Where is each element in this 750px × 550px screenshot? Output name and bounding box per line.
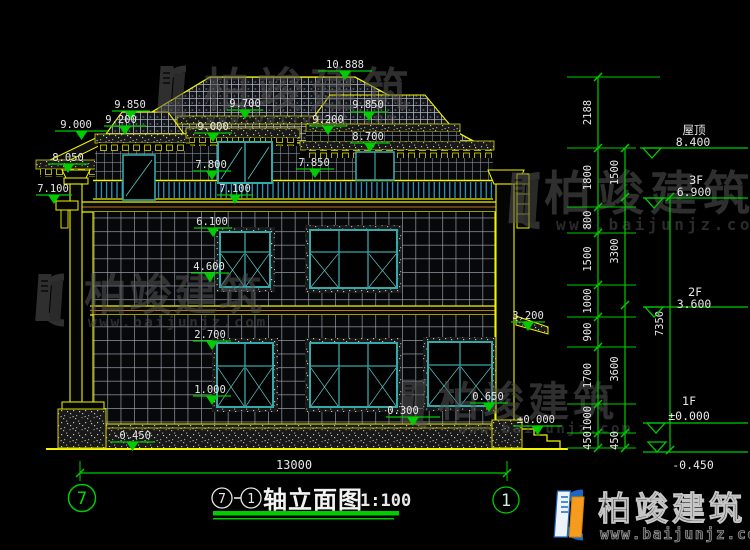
elevation-value: 3.200: [512, 310, 544, 322]
floor-elevation: 6.900: [677, 185, 712, 199]
watermark-url: www.baijunjz.com: [88, 315, 268, 331]
elevation-value: 9.700: [229, 98, 261, 110]
elevation-value: 9.000: [197, 121, 229, 133]
elevation-value: 9.850: [352, 99, 384, 111]
dimension-value: 1000: [582, 288, 594, 313]
floor-elevation: 3.600: [677, 297, 712, 311]
elevation-value: 9.000: [60, 119, 92, 131]
dimension-value: 1000: [582, 406, 594, 431]
elevation-value: 7.100: [37, 183, 69, 195]
right-dentils: [306, 150, 492, 158]
elevation-value: 2.700: [194, 329, 226, 341]
balcony-end-molding: [56, 201, 78, 210]
elevation-value: 8.050: [52, 152, 84, 164]
dimension-value: 3300: [609, 238, 621, 263]
floor-elevation: ±0.000: [668, 409, 710, 423]
left-column-pedestal: [58, 409, 106, 448]
corbel: [61, 210, 68, 228]
title-underline-thin: [213, 518, 394, 520]
1f-center-window: [310, 343, 397, 407]
left-eave-fascia: [95, 134, 190, 143]
floor-elevation: -0.450: [672, 458, 714, 472]
title-axis-from: 7: [218, 492, 226, 507]
overall-width-text: 13000: [276, 458, 312, 472]
left-column-shaft: [70, 184, 82, 402]
dimension-value: 1500: [609, 160, 621, 185]
dimension-value: 900: [582, 323, 594, 342]
right-eave-fascia: [300, 141, 494, 150]
dimension-value: 1800: [582, 165, 594, 190]
brand-logo-icon: [554, 491, 584, 537]
elevation-value: 1.000: [194, 384, 226, 396]
2f-right-window: [310, 230, 397, 288]
dimension-value: 2188: [582, 100, 594, 125]
title-underline-thick: [213, 511, 399, 516]
brand-url: www.baijunjz.com: [600, 525, 750, 543]
elevation-value: 7.850: [298, 157, 330, 169]
watermark-text: 柏竣建筑: [544, 167, 750, 222]
elevation-value: -0.450: [113, 430, 151, 442]
floor-name: 1F: [682, 394, 696, 408]
elevation-value: 8.700: [352, 131, 384, 143]
elevation-drawing-canvas: 柏竣建筑 www.baijunjz.com 柏竣建筑 www.baijunjz.…: [0, 0, 750, 550]
axis-bubble-left-number: 7: [77, 489, 87, 509]
elevation-value: 0.300: [387, 405, 419, 417]
elevation-value: 4.600: [193, 261, 225, 273]
drawing-scale: 1:100: [360, 491, 411, 511]
floor-elevation: 8.400: [676, 135, 711, 149]
3f-slab-band: [78, 202, 502, 212]
dimension-value: 450: [582, 431, 594, 450]
elevation-value: 6.100: [196, 216, 228, 228]
dimension-value: 3600: [609, 356, 621, 381]
watermark-text: 柏竣建筑: [84, 271, 264, 321]
dimension-value: 1700: [582, 363, 594, 388]
dimension-value: 800: [582, 211, 594, 230]
dimension-value: 1500: [582, 246, 594, 271]
dimension-value: 450: [609, 431, 621, 450]
elevation-value: ±0.000: [517, 414, 555, 426]
elevation-value: 9.850: [114, 99, 146, 111]
elevation-value: 10.888: [326, 59, 364, 71]
axis-bubble-right-number: 1: [501, 491, 511, 511]
title-axis-to: 1: [247, 492, 255, 507]
cad-elevation-screenshot: 柏竣建筑 www.baijunjz.com 柏竣建筑 www.baijunjz.…: [0, 0, 750, 550]
plinth: [90, 424, 498, 448]
elevation-value: 7.800: [195, 159, 227, 171]
brand-name: 柏竣建筑: [598, 489, 746, 528]
drawing-title-text: 轴立面图: [263, 486, 363, 514]
elevation-value: 0.650: [472, 391, 504, 403]
elevation-value: 9.200: [105, 114, 137, 126]
elevation-value: 7.100: [219, 183, 251, 195]
left-dentils: [98, 143, 186, 151]
elevation-value: 9.200: [312, 114, 344, 126]
